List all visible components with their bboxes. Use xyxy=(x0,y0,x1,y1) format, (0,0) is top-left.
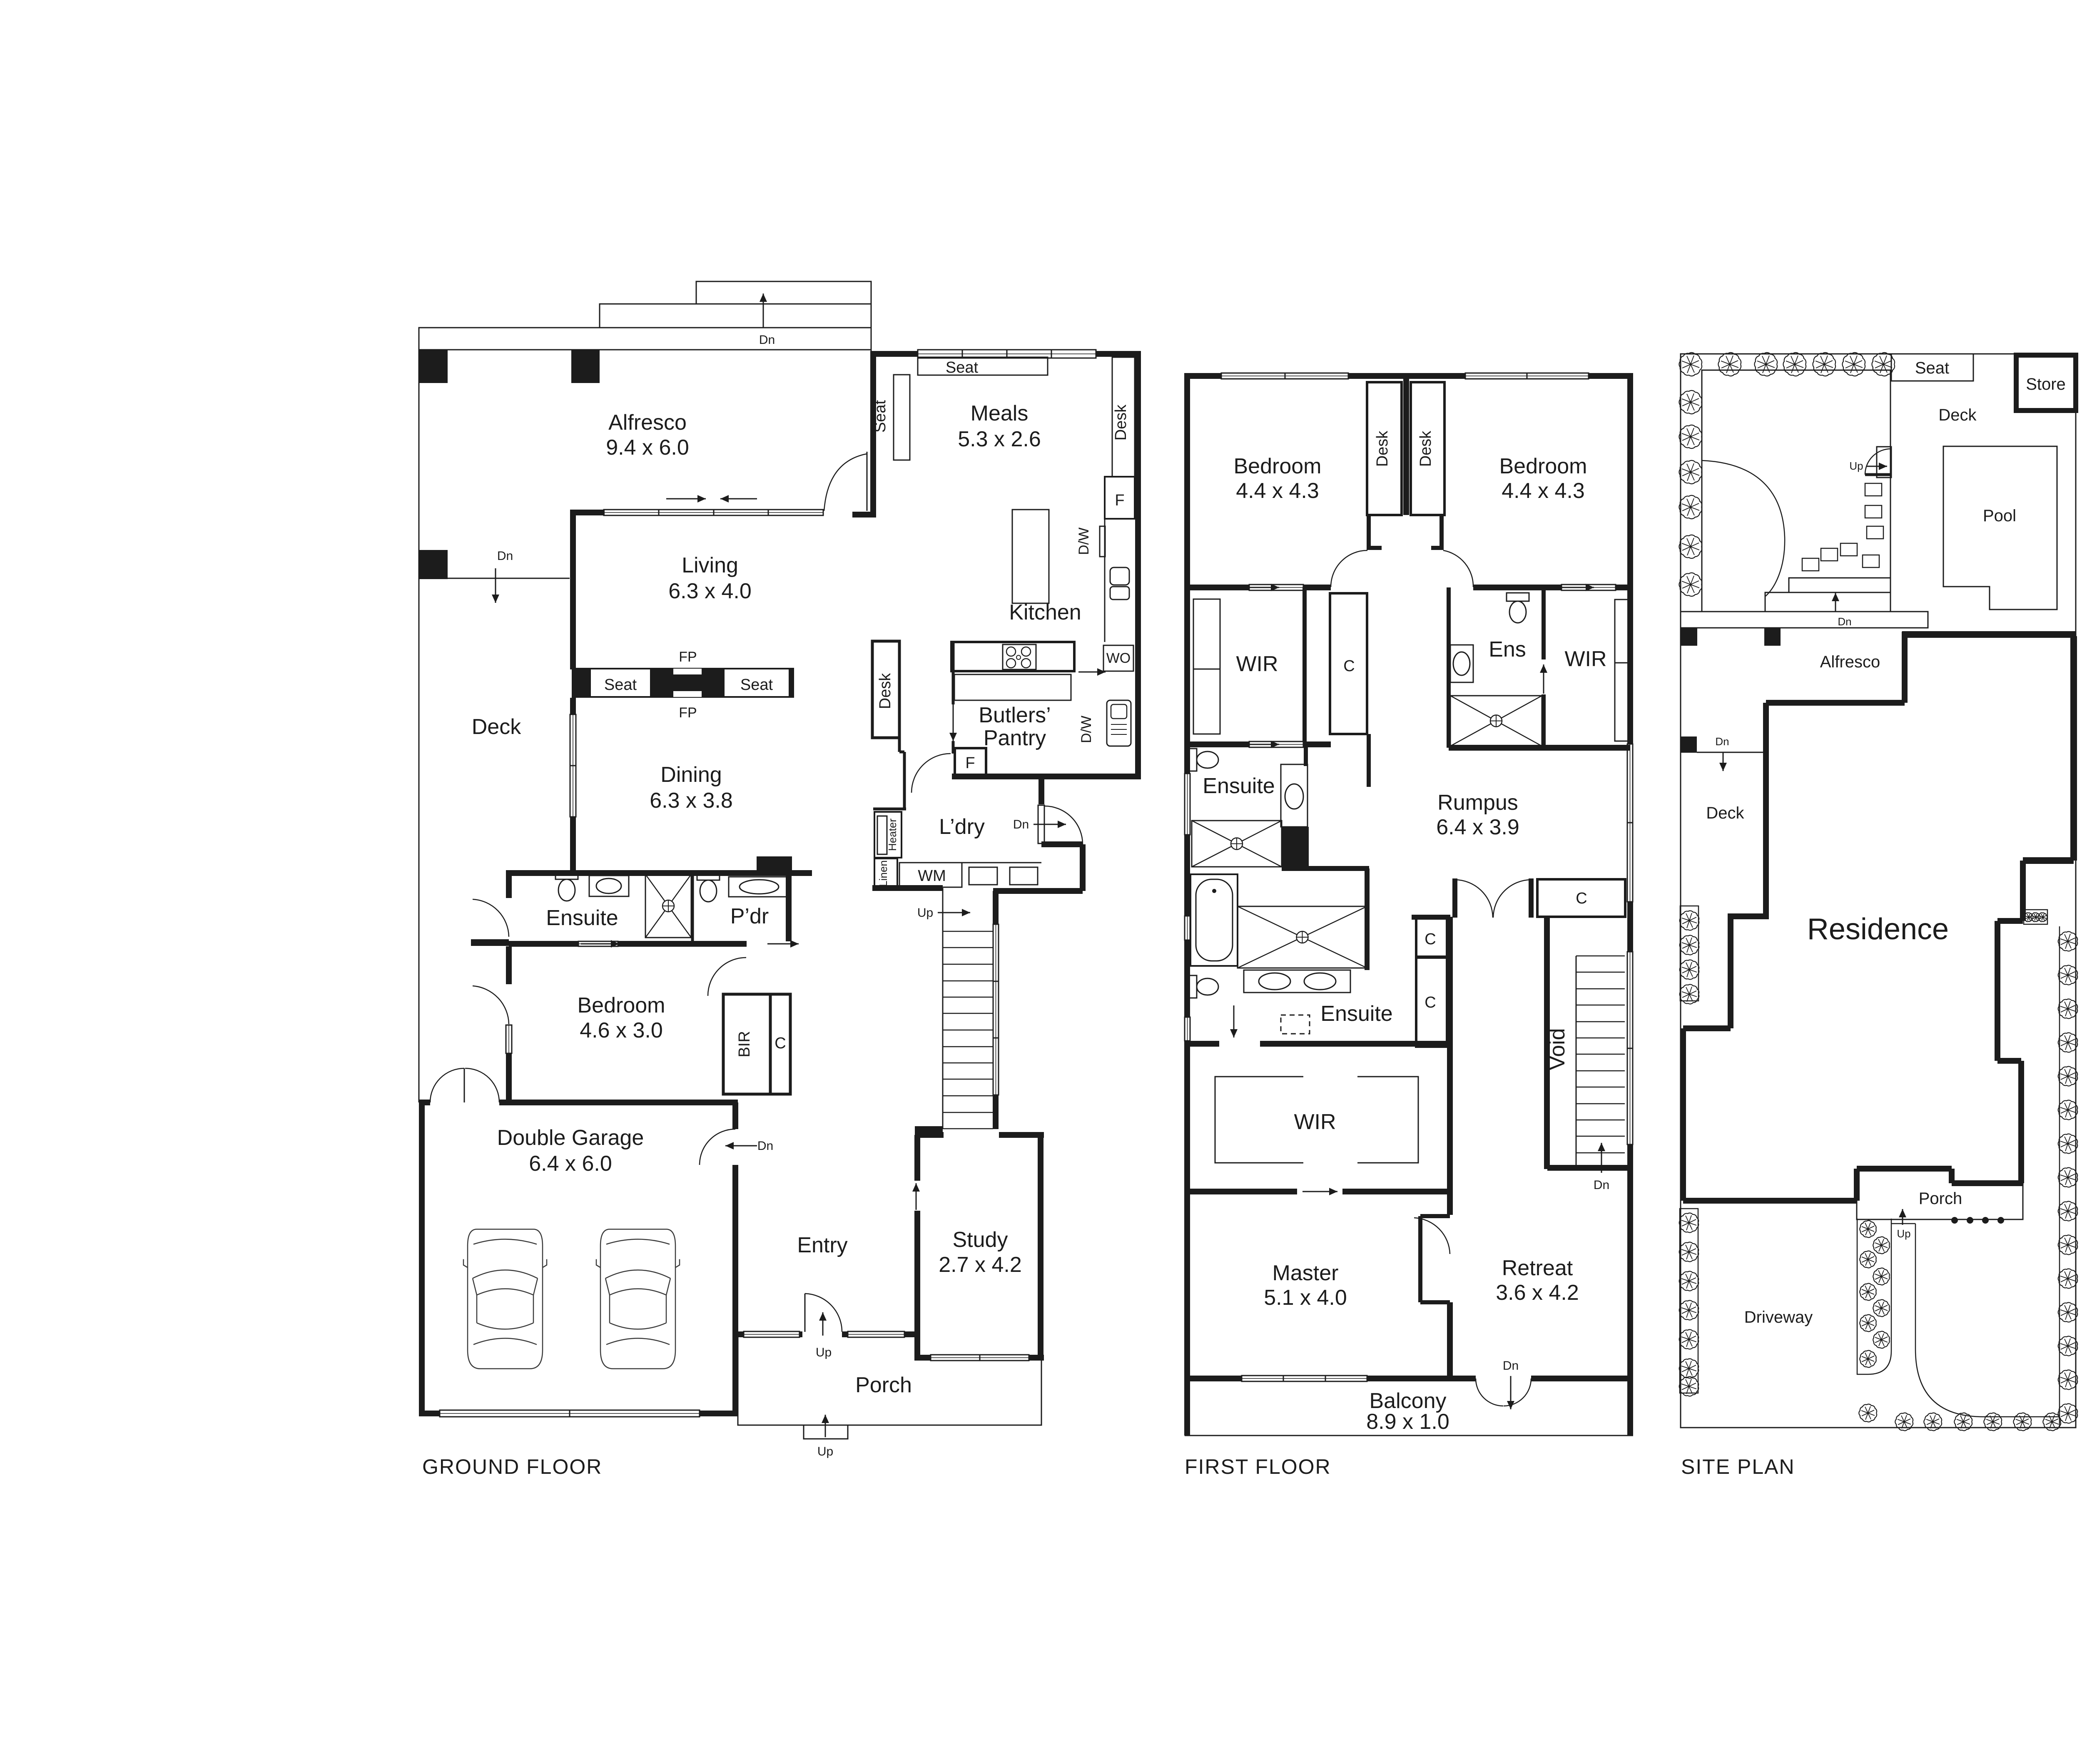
svg-text:C: C xyxy=(1425,931,1436,948)
svg-text:WIR: WIR xyxy=(1236,652,1278,676)
svg-text:Up: Up xyxy=(1849,460,1863,472)
svg-text:4.4 x 4.3: 4.4 x 4.3 xyxy=(1502,479,1584,503)
svg-text:C: C xyxy=(1576,890,1587,907)
svg-text:3.6 x 4.2: 3.6 x 4.2 xyxy=(1496,1281,1579,1305)
svg-text:Dn: Dn xyxy=(1503,1359,1519,1373)
svg-text:Linen: Linen xyxy=(877,860,889,887)
svg-text:6.4 x 6.0: 6.4 x 6.0 xyxy=(529,1152,612,1176)
svg-text:Desk: Desk xyxy=(1374,430,1391,467)
svg-text:4.6 x 3.0: 4.6 x 3.0 xyxy=(580,1018,662,1042)
svg-text:Kitchen: Kitchen xyxy=(1009,600,1081,624)
svg-text:Dn: Dn xyxy=(757,1139,773,1153)
svg-text:WIR: WIR xyxy=(1294,1110,1336,1134)
svg-text:Dn: Dn xyxy=(1838,615,1851,628)
svg-text:Seat: Seat xyxy=(1915,359,1949,377)
svg-text:Seat: Seat xyxy=(604,676,637,694)
svg-text:WO: WO xyxy=(1106,650,1131,666)
svg-text:Pool: Pool xyxy=(1983,507,2016,525)
svg-text:C: C xyxy=(1343,657,1355,675)
svg-text:5.3 x 2.6: 5.3 x 2.6 xyxy=(958,427,1041,451)
svg-text:P’dr: P’dr xyxy=(730,904,769,928)
svg-text:Dn: Dn xyxy=(1013,818,1029,831)
svg-text:Deck: Deck xyxy=(1938,406,1977,424)
svg-text:Seat: Seat xyxy=(740,676,773,694)
svg-text:Ens: Ens xyxy=(1489,637,1526,662)
svg-text:Meals: Meals xyxy=(971,401,1029,425)
svg-text:Rumpus: Rumpus xyxy=(1437,791,1518,815)
svg-text:Entry: Entry xyxy=(797,1233,847,1257)
svg-text:Seat: Seat xyxy=(946,359,979,376)
svg-text:C: C xyxy=(1425,994,1436,1011)
svg-text:Dn: Dn xyxy=(497,549,513,563)
svg-text:Heater: Heater xyxy=(886,819,899,851)
svg-text:Up: Up xyxy=(917,906,933,920)
svg-text:Driveway: Driveway xyxy=(1744,1308,1813,1326)
svg-text:D/W: D/W xyxy=(1078,716,1094,743)
svg-text:Bedroom: Bedroom xyxy=(1234,454,1322,478)
svg-text:Study: Study xyxy=(953,1228,1008,1252)
svg-text:FP: FP xyxy=(679,705,697,721)
svg-text:Ensuite: Ensuite xyxy=(1203,774,1275,798)
svg-text:Ensuite: Ensuite xyxy=(546,906,618,930)
svg-text:2.7 x 4.2: 2.7 x 4.2 xyxy=(939,1253,1021,1277)
svg-text:6.4 x 3.9: 6.4 x 3.9 xyxy=(1436,815,1519,839)
svg-text:Dn: Dn xyxy=(759,333,775,347)
svg-text:6.3 x 3.8: 6.3 x 3.8 xyxy=(650,789,732,813)
svg-text:Alfresco: Alfresco xyxy=(1820,653,1880,671)
svg-text:WIR: WIR xyxy=(1564,647,1606,671)
svg-text:8.9 x 1.0: 8.9 x 1.0 xyxy=(1366,1410,1449,1434)
svg-text:Residence: Residence xyxy=(1807,913,1949,946)
svg-text:WM: WM xyxy=(918,867,946,885)
svg-text:6.3 x 4.0: 6.3 x 4.0 xyxy=(668,579,751,603)
svg-text:F: F xyxy=(1115,492,1124,509)
svg-text:5.1 x 4.0: 5.1 x 4.0 xyxy=(1264,1286,1347,1310)
svg-text:Dn: Dn xyxy=(1594,1178,1609,1192)
svg-text:Desk: Desk xyxy=(877,673,894,709)
svg-text:FIRST FLOOR: FIRST FLOOR xyxy=(1185,1455,1331,1478)
svg-text:Bedroom: Bedroom xyxy=(1499,454,1587,478)
svg-text:Deck: Deck xyxy=(472,715,521,739)
svg-text:SITE PLAN: SITE PLAN xyxy=(1681,1455,1795,1478)
svg-text:Bedroom: Bedroom xyxy=(578,993,665,1018)
svg-text:Alfresco: Alfresco xyxy=(608,411,687,435)
svg-text:Dining: Dining xyxy=(660,763,722,787)
svg-text:Void: Void xyxy=(1545,1028,1569,1070)
svg-text:Desk: Desk xyxy=(1112,404,1130,441)
svg-text:Pantry: Pantry xyxy=(984,726,1046,750)
svg-text:Retreat: Retreat xyxy=(1502,1256,1573,1280)
svg-text:F: F xyxy=(965,754,975,772)
svg-text:Porch: Porch xyxy=(855,1373,912,1397)
svg-text:9.4 x 6.0: 9.4 x 6.0 xyxy=(606,435,689,460)
svg-text:4.4 x 4.3: 4.4 x 4.3 xyxy=(1236,479,1319,503)
svg-text:GROUND FLOOR: GROUND FLOOR xyxy=(422,1455,602,1478)
svg-text:Porch: Porch xyxy=(1919,1189,1962,1208)
svg-text:Up: Up xyxy=(816,1346,832,1359)
svg-text:C: C xyxy=(775,1035,786,1052)
svg-text:FP: FP xyxy=(679,649,697,665)
svg-text:D/W: D/W xyxy=(1076,527,1092,555)
svg-text:BIR: BIR xyxy=(736,1031,753,1057)
svg-text:Store: Store xyxy=(2026,375,2066,393)
svg-text:Master: Master xyxy=(1273,1261,1339,1285)
svg-text:L’dry: L’dry xyxy=(939,815,985,839)
svg-text:Butlers’: Butlers’ xyxy=(979,703,1051,727)
svg-text:Dn: Dn xyxy=(1715,735,1729,748)
svg-text:Ensuite: Ensuite xyxy=(1320,1002,1392,1026)
svg-text:Double Garage: Double Garage xyxy=(497,1126,644,1150)
svg-text:Deck: Deck xyxy=(1706,804,1744,822)
svg-text:Living: Living xyxy=(682,553,738,577)
svg-text:Up: Up xyxy=(817,1445,833,1458)
svg-text:Up: Up xyxy=(1897,1227,1910,1240)
svg-text:Seat: Seat xyxy=(872,400,889,433)
svg-text:Desk: Desk xyxy=(1417,430,1434,467)
